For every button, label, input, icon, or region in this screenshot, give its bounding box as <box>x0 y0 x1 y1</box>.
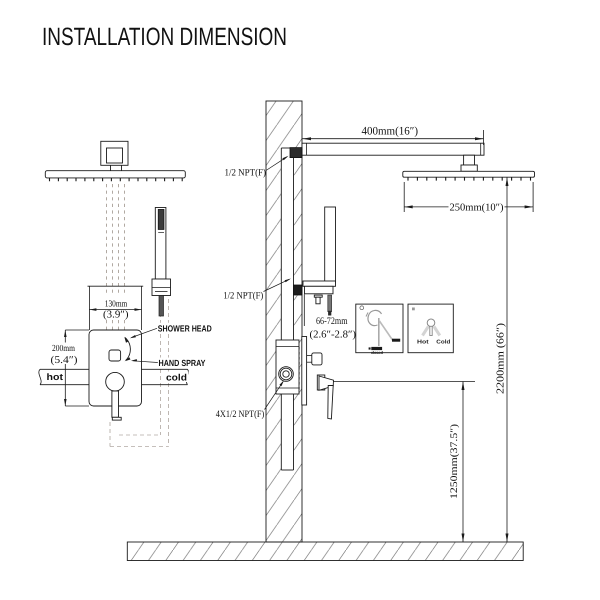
svg-text:cold: cold <box>166 372 187 382</box>
svg-text:INSTALLATION DIMENSION: INSTALLATION DIMENSION <box>42 23 287 51</box>
svg-text:Hot: Hot <box>417 339 429 345</box>
svg-text:1/2 NPT(F): 1/2 NPT(F) <box>223 290 263 301</box>
svg-text:hot: hot <box>47 372 64 382</box>
svg-text:(2.6″-2.8″): (2.6″-2.8″) <box>310 330 357 341</box>
svg-text:closed: closed <box>371 350 383 355</box>
svg-text:HAND SPRAY: HAND SPRAY <box>159 358 206 368</box>
svg-text:130mm: 130mm <box>105 300 128 310</box>
svg-text:1/2 NPT(F): 1/2 NPT(F) <box>225 168 267 179</box>
svg-text:Cold: Cold <box>436 338 451 345</box>
svg-text:250mm(10″): 250mm(10″) <box>450 202 505 213</box>
svg-text:(5.4″): (5.4″) <box>51 355 79 366</box>
svg-text:66-72mm: 66-72mm <box>316 316 348 327</box>
svg-text:200mm: 200mm <box>52 344 76 354</box>
svg-text:400mm(16″): 400mm(16″) <box>362 126 419 138</box>
svg-text:4X1/2 NPT(F): 4X1/2 NPT(F) <box>216 409 264 420</box>
svg-text:SHOWER HEAD: SHOWER HEAD <box>158 323 212 333</box>
svg-text:(3.9″): (3.9″) <box>103 309 129 320</box>
svg-text:2200mm (66″): 2200mm (66″) <box>496 322 507 394</box>
svg-text:1250mm(37.5″): 1250mm(37.5″) <box>449 424 460 499</box>
